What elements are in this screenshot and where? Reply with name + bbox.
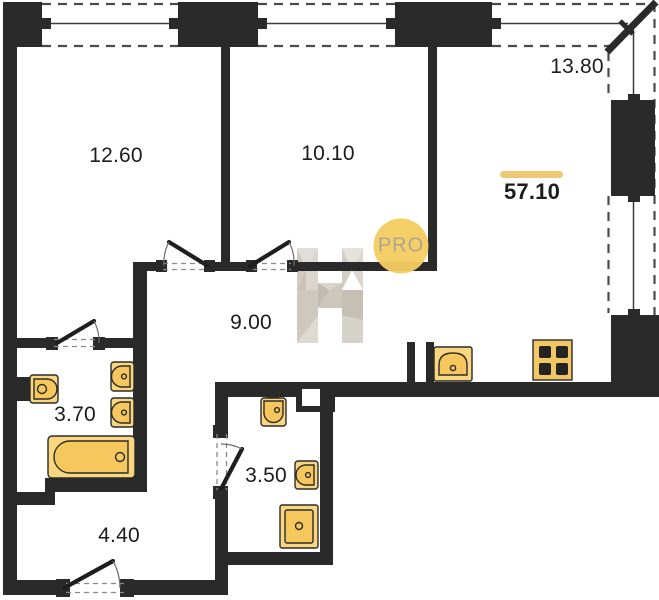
toilet-icon	[111, 362, 134, 391]
room-label-bedroom-2: 10.10	[301, 142, 355, 166]
shower-tray-icon	[280, 505, 318, 548]
watermark-pro-label: PRO	[378, 235, 424, 258]
room-label-bedroom-1: 12.60	[89, 144, 143, 168]
room-label-toilet-room: 3.50	[245, 464, 287, 488]
total-area-label: 57.10	[504, 179, 560, 205]
door-bedroom-1	[169, 242, 208, 266]
total-area-accent-bar	[500, 171, 563, 178]
kitchen-sink-icon	[434, 347, 472, 381]
door-toilet-room	[221, 449, 242, 489]
fixtures	[17, 340, 572, 548]
room-label-living-room: 13.80	[550, 55, 604, 79]
bidet-icon	[111, 398, 134, 427]
bathroom-sink-icon	[17, 375, 58, 403]
floor-plan-drawing	[0, 0, 659, 600]
room-label-entrance-hall: 4.40	[98, 524, 140, 548]
floor-plan: 12.60 10.10 13.80 9.00 3.70 3.50 4.40 57…	[0, 0, 659, 600]
stove-icon	[533, 340, 572, 380]
room-label-hallway: 9.00	[230, 311, 272, 335]
wc-toilet-icon	[295, 461, 318, 489]
door-bedroom-2	[250, 242, 289, 266]
shaft-niche	[302, 389, 320, 406]
corner-window	[607, 2, 656, 52]
bathtub-icon	[48, 436, 135, 478]
room-label-bathroom: 3.70	[54, 403, 96, 427]
